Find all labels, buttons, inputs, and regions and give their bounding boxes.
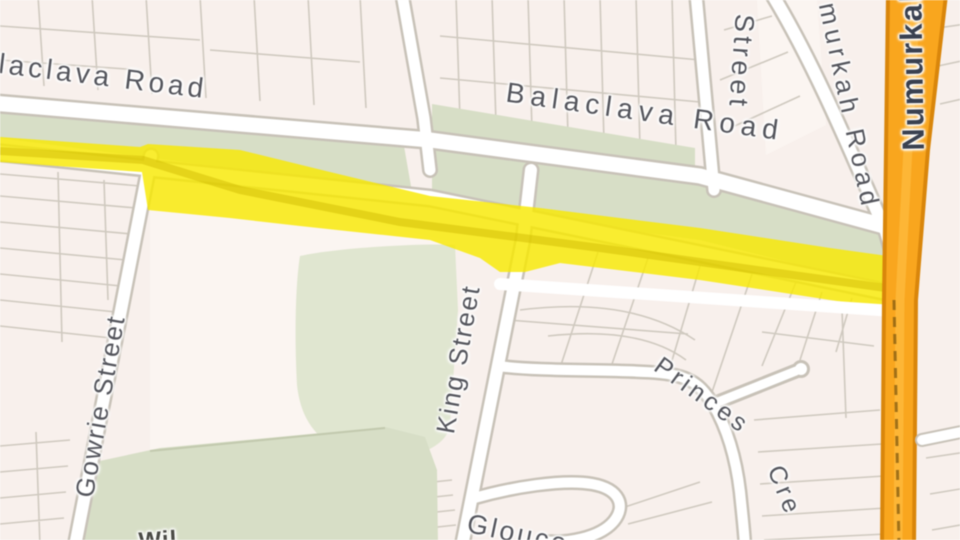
- map-canvas[interactable]: Balaclava Road Balaclava Road Street Num…: [0, 0, 960, 540]
- park-label-partial: Wil: [138, 528, 178, 540]
- east-side-street: [922, 431, 960, 440]
- highway-label-numurkah: Numurkah: [895, 0, 929, 151]
- road-label-street-top: Street: [724, 13, 758, 111]
